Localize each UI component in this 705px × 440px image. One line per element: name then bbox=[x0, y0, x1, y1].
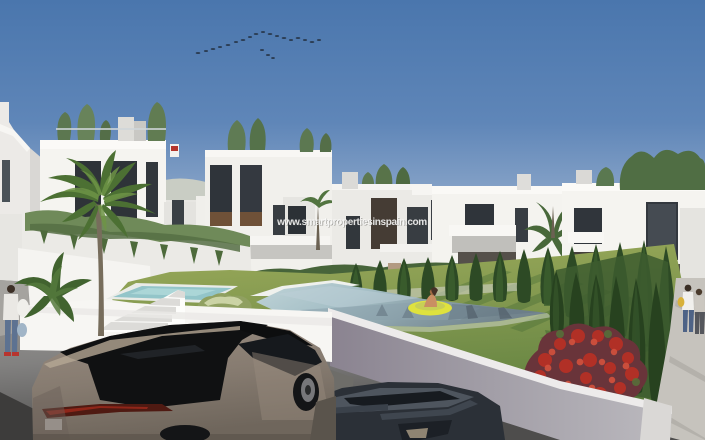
svg-text:www.smartpropertiesinspain.com: www.smartpropertiesinspain.com bbox=[276, 217, 427, 228]
